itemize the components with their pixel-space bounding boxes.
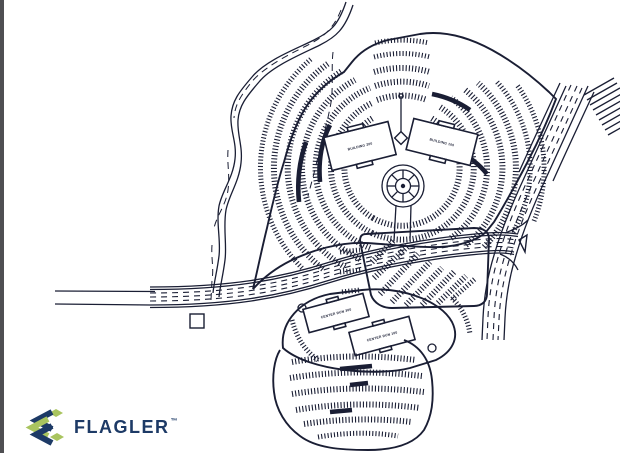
logo-brand-text: FLAGLER xyxy=(74,417,170,438)
flagler-logo-icon xyxy=(20,408,64,446)
median-hatching xyxy=(584,78,620,135)
page: BUILDING 200 BUILDING 100 xyxy=(0,0,620,453)
logo-trademark: ™ xyxy=(171,418,178,425)
flagler-logo: FLAGLER ™ xyxy=(20,408,178,446)
utility-box xyxy=(190,314,204,328)
building-200: BUILDING 200 xyxy=(323,118,397,175)
north-parking-lot xyxy=(253,33,556,289)
center-flag-marker xyxy=(395,94,408,145)
roundabout xyxy=(382,165,424,207)
site-plan-drawing: BUILDING 200 BUILDING 100 xyxy=(0,0,620,453)
building-100: BUILDING 100 xyxy=(405,115,479,170)
logo-wordmark: FLAGLER ™ xyxy=(74,417,178,438)
